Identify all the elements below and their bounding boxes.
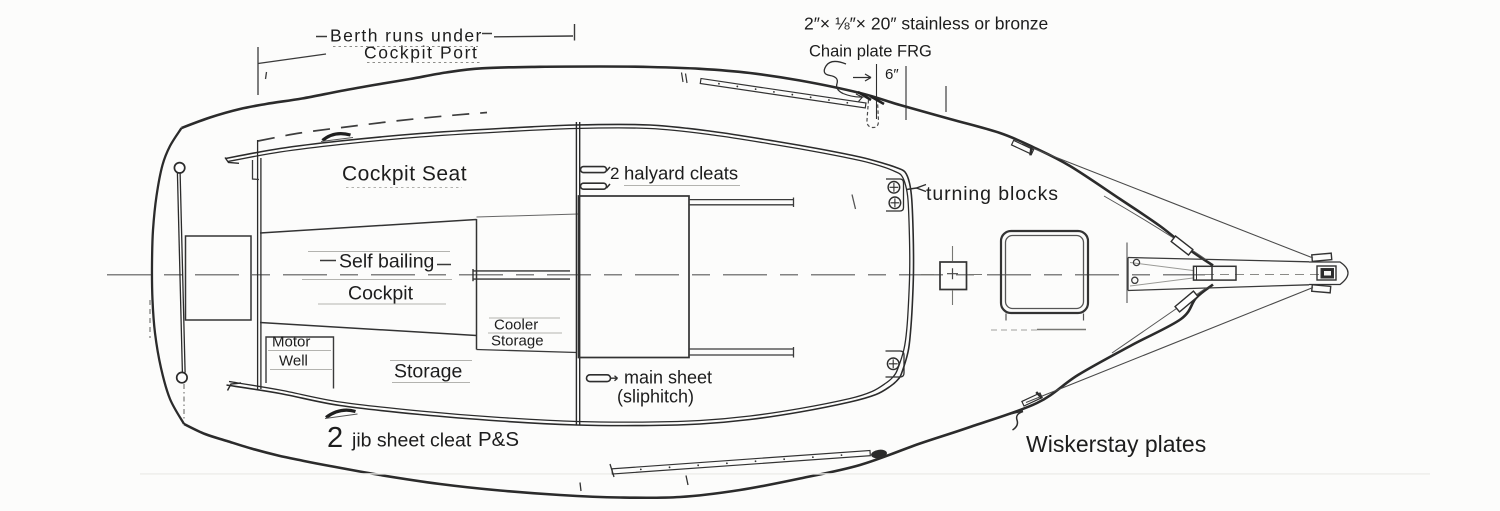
- svg-text:Storage: Storage: [491, 333, 544, 350]
- svg-text:Cooler: Cooler: [494, 317, 538, 334]
- svg-text:6″: 6″: [885, 66, 899, 83]
- svg-text:Self bailing: Self bailing: [339, 251, 434, 273]
- svg-text:Cockpit Seat: Cockpit Seat: [342, 163, 467, 186]
- svg-text:Motor: Motor: [272, 334, 310, 351]
- svg-text:turning blocks: turning blocks: [926, 183, 1059, 205]
- svg-text:Wiskerstay plates: Wiskerstay plates: [1026, 431, 1206, 457]
- svg-text:Cockpit Port: Cockpit Port: [364, 43, 479, 63]
- svg-text:Well: Well: [279, 353, 308, 370]
- svg-text:Cockpit: Cockpit: [348, 283, 414, 305]
- svg-text:2″× ⅛″× 20″ stainless or bronz: 2″× ⅛″× 20″ stainless or bronze: [804, 14, 1048, 34]
- svg-text:jib sheet cleat: jib sheet cleat: [351, 430, 472, 452]
- svg-text:P&S: P&S: [478, 428, 519, 451]
- svg-text:Storage: Storage: [394, 361, 462, 383]
- svg-text:main sheet: main sheet: [624, 368, 712, 388]
- svg-text:halyard cleats: halyard cleats: [624, 163, 738, 184]
- svg-text:(sliphitch): (sliphitch): [617, 387, 694, 407]
- svg-text:Chain plate FRG: Chain plate FRG: [809, 43, 932, 61]
- svg-text:2: 2: [327, 422, 343, 454]
- svg-text:2: 2: [610, 164, 619, 183]
